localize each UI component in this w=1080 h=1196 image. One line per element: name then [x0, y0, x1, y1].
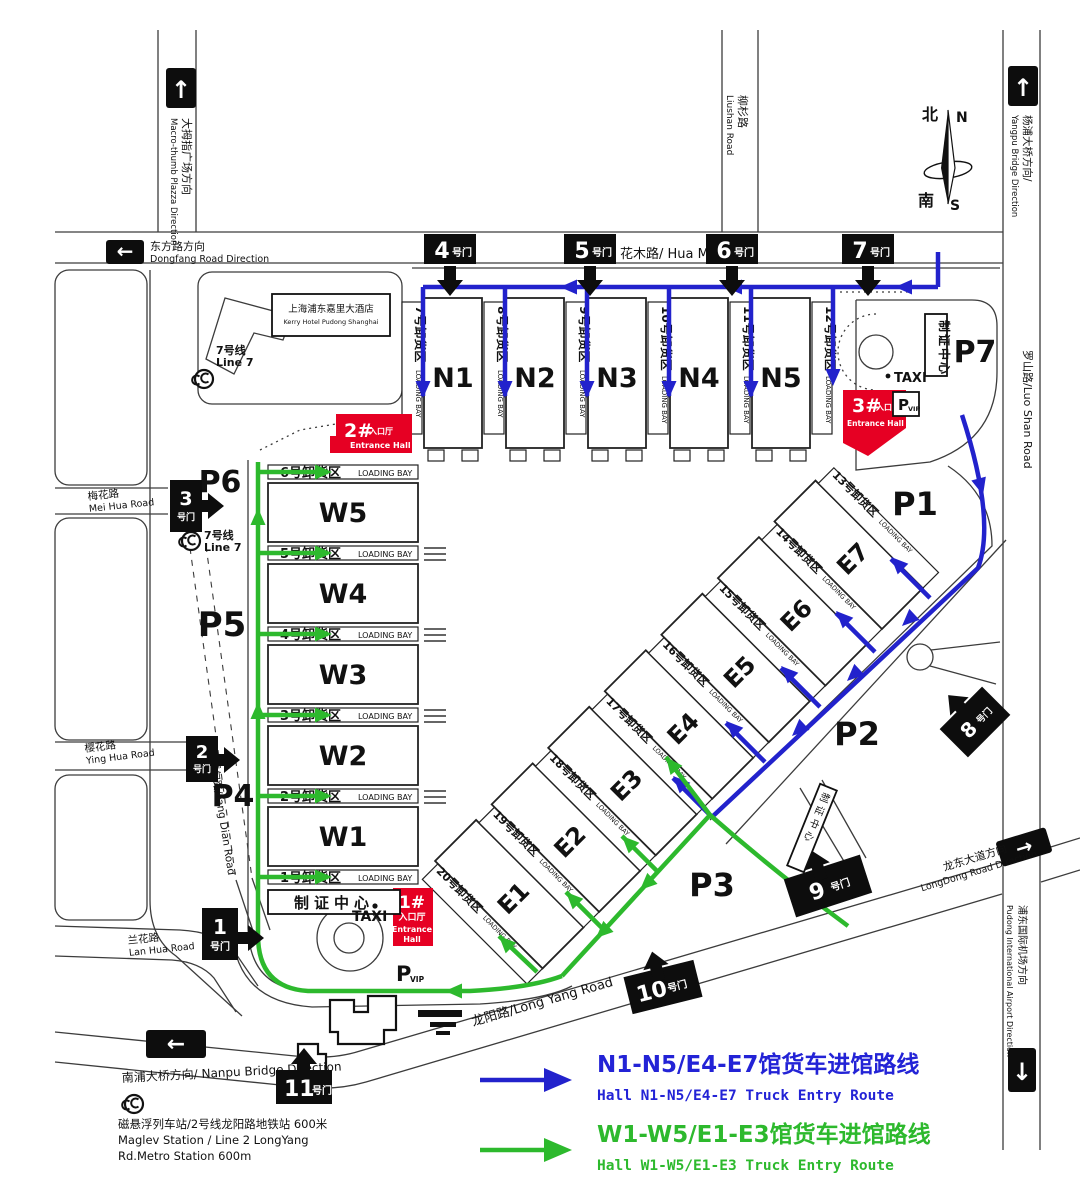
hall-w2-label: W2 [319, 741, 368, 772]
liushan-cn: 柳杉路 [736, 95, 750, 128]
expo-truck-route-map: N1 N2 N3 N4 N5 7号卸货区LOADING BAY 8号卸货区LOA… [0, 0, 1080, 1196]
yangpu-en: Yangpu Bridge Direction [1009, 114, 1019, 217]
yangpu-cn: 杨浦大桥方向/ [1021, 115, 1034, 182]
gate11-suffix: 号门 [312, 1084, 332, 1097]
taxi-bottom-label: TAXI [352, 909, 387, 925]
pvip-top: P VIP [893, 392, 920, 416]
bay11-label: 11号卸货区 [741, 306, 756, 371]
pudong-en: Pudong International Airport Direction [1005, 905, 1014, 1057]
parking-p2: P2 [834, 715, 880, 753]
legend-green-en: Hall W1-W5/E1-E3 Truck Entry Route [597, 1158, 894, 1174]
maglev-station-note: 磁悬浮列车站/2号线龙阳路地铁站 600米 Maglev Station / L… [118, 1095, 328, 1163]
bay7-label: 7号卸货区 [413, 306, 428, 362]
dongfang-cn: 东方路方向 [150, 239, 205, 253]
map-canvas: N1 N2 N3 N4 N5 7号卸货区LOADING BAY 8号卸货区LOA… [0, 0, 1080, 1196]
gate5-arrow-icon [577, 266, 603, 296]
entrance2-en: Entrance Hall [350, 441, 411, 450]
compass-north-en: N [956, 110, 968, 126]
hotel-name-en: Kerry Hotel Pudong Shanghai [283, 318, 378, 326]
north-halls: N1 N2 N3 N4 N5 7号卸货区LOADING BAY 8号卸货区LOA… [402, 298, 838, 461]
gate-1: 1 号门 [202, 908, 264, 960]
up-arrow-icon: ↑ [171, 76, 191, 104]
gate4-arrow-icon [437, 266, 463, 296]
maglev-cn: 磁悬浮列车站/2号线龙阳路地铁站 600米 [118, 1117, 328, 1131]
gate7-suffix: 号门 [870, 246, 890, 259]
bay12-label: 12号卸货区 [823, 306, 838, 371]
gate-2: 2 号门 [186, 736, 240, 782]
pudong-cn: 浦东国际机场方向 [1016, 905, 1029, 985]
legend-blue-cn: N1-N5/E4-E7馆货车进馆路线 [597, 1051, 919, 1078]
dongfang-en: Dongfang Road Direction [150, 254, 269, 265]
gate3-suffix: 号门 [177, 511, 195, 523]
dir-longdong: → 龙东大道方向 LongDong Road Direction [915, 827, 1053, 894]
compass-north-cn: 北 [922, 105, 938, 124]
hall-n3-label: N3 [596, 363, 637, 394]
hotel-name-cn: 上海浦东嘉里大酒店 [288, 303, 374, 315]
hall-w4-label: W4 [319, 579, 368, 610]
lanhua-road-label: 兰花路 Lan Hua Road [127, 927, 195, 959]
bay4-en: LOADING BAY [358, 631, 412, 640]
bay8-label: 8号卸货区 [495, 306, 510, 362]
cert-center-top: 制证中心 [925, 314, 952, 376]
left-arrow-icon: ← [117, 239, 134, 263]
line7-cn: 7号线 [216, 343, 246, 357]
yinghua-road-label: 樱花路 Ying Hua Road [83, 734, 156, 767]
bay6-en: LOADING BAY [358, 469, 412, 478]
entrance1-en2: Hall [403, 935, 421, 944]
hall-n5-label: N5 [760, 363, 801, 394]
down-arrow-icon: ↓ [1012, 1058, 1032, 1086]
liushan-road-label: 柳杉路 Liushan Road [724, 95, 750, 155]
taxi-top-label: TAXI [894, 371, 927, 386]
luoshan-road-label: 罗山路/Luo Shan Road [1021, 350, 1034, 469]
gate2-num: 2 [196, 742, 209, 763]
parking-p6: P6 [199, 465, 242, 500]
macrothumb-en: Macro-thumb Plazza Direction [168, 118, 178, 245]
metro-icon [122, 1095, 143, 1113]
entrance1-en1: Entrance [392, 925, 433, 934]
bay12-en: LOADING BAY [824, 376, 832, 424]
bay9-label: 9号卸货区 [577, 306, 592, 362]
pvip-top-vip: VIP [908, 405, 920, 413]
north-hall-feet [428, 450, 806, 461]
dir-yangpu: ↑ 杨浦大桥方向/ Yangpu Bridge Direction [1008, 66, 1038, 217]
west-halls: W5 W4 W3 W2 W1 6号卸货区 LOADING BAY 5号卸货区 L… [268, 465, 446, 886]
dir-pudong-airport: 浦东国际机场方向 Pudong International Airport Di… [1005, 905, 1036, 1092]
gate4-suffix: 号门 [452, 246, 472, 259]
gate3-num: 3 [179, 488, 192, 510]
gate1-num: 1 [213, 915, 227, 939]
dir-dongfang: ← 东方路方向 Dongfang Road Direction [106, 239, 269, 265]
bay2-en: LOADING BAY [358, 793, 412, 802]
macrothumb-cn: 大拇指广场方向 [180, 118, 194, 195]
pvip-bottom: P VIP [396, 962, 425, 986]
gate2-suffix: 号门 [193, 763, 211, 775]
line7-en: Line 7 [216, 356, 254, 369]
entrance2-cn: 入口厅 [368, 427, 393, 436]
legend-blue-arrow-icon [544, 1068, 572, 1092]
bay3-en: LOADING BAY [358, 712, 412, 721]
bay-tick-marks [424, 548, 446, 803]
bay5-en: LOADING BAY [358, 550, 412, 559]
maglev-en1: Maglev Station / Line 2 LongYang [118, 1133, 309, 1147]
entrance-hall-2: 2# 入口厅 Entrance Hall [330, 414, 412, 453]
gate-9: 9 号门 [778, 837, 872, 917]
line7-en: Line 7 [204, 541, 242, 554]
legend-blue-en: Hall N1-N5/E4-E7 Truck Entry Route [597, 1088, 894, 1104]
metro-line7-hotel: 7号线 Line 7 [192, 343, 253, 388]
gate6-suffix: 号门 [734, 246, 754, 259]
left-arrow-icon: ← [167, 1032, 185, 1057]
gate-8: 8 号门 [927, 674, 1010, 757]
liushan-en: Liushan Road [724, 95, 734, 155]
entrance1-cn: 入口厅 [397, 912, 425, 923]
hall-n4-label: N4 [678, 363, 719, 394]
metro-icon [192, 370, 213, 388]
gate6-num: 6 [716, 239, 731, 264]
hall-w1-label: W1 [319, 822, 368, 853]
hall-w5-label: W5 [319, 498, 368, 529]
parking-p7: P7 [954, 335, 997, 370]
metro-icon [179, 532, 200, 550]
legend-green-arrow-icon [544, 1138, 572, 1162]
gate5-suffix: 号门 [592, 246, 612, 259]
parking-p5: P5 [198, 605, 247, 645]
legend: N1-N5/E4-E7馆货车进馆路线 Hall N1-N5/E4-E7 Truc… [480, 1051, 931, 1174]
entrance1-num: 1# [399, 893, 425, 913]
hall-w3-label: W3 [319, 660, 368, 691]
legend-green-cn: W1-W5/E1-E3馆货车进馆路线 [597, 1121, 931, 1148]
gate7-num: 7 [852, 239, 867, 264]
dir-macrothumb: ↑ 大拇指广场方向 Macro-thumb Plazza Direction [166, 68, 196, 245]
hall-n1-label: N1 [432, 363, 473, 394]
gate11-num: 11 [284, 1077, 315, 1102]
gate1-suffix: 号门 [210, 940, 230, 953]
cert-center-top-label: 制证中心 [937, 320, 952, 376]
line7-cn: 7号线 [204, 528, 234, 542]
gate5-num: 5 [574, 239, 589, 264]
bay10-label: 10号卸货区 [659, 306, 674, 371]
bay1-en: LOADING BAY [358, 874, 412, 883]
taxi-top: TAXI [886, 371, 927, 386]
parking-p1: P1 [892, 485, 938, 523]
entrance3-en: Entrance Hall [847, 419, 904, 428]
compass-south-cn: 南 [918, 191, 934, 210]
gate4-num: 4 [434, 239, 449, 264]
pvip-bottom-vip: VIP [410, 975, 425, 984]
luoshan-label: 罗山路/Luo Shan Road [1021, 350, 1034, 469]
maglev-en2: Rd.Metro Station 600m [118, 1149, 251, 1163]
gate-10: 10 号门 [619, 942, 702, 1014]
up-arrow-icon: ↑ [1013, 74, 1033, 102]
hall-n2-label: N2 [514, 363, 555, 394]
compass-south-en: S [950, 198, 960, 214]
parking-p3: P3 [689, 866, 735, 904]
compass: 北 N 南 S [918, 105, 973, 214]
